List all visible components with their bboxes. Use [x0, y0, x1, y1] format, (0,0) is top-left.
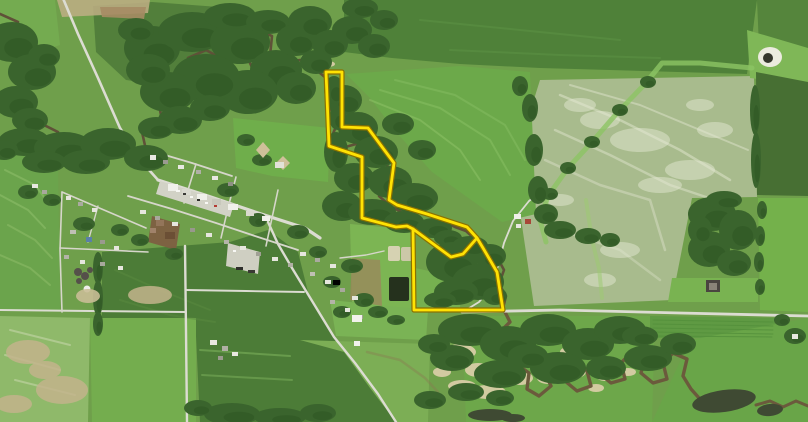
- aerial-map-svg: [0, 0, 808, 422]
- silo-pad: [76, 289, 100, 303]
- aerial-map-view: [0, 0, 808, 422]
- farm-pond-water: [763, 53, 773, 63]
